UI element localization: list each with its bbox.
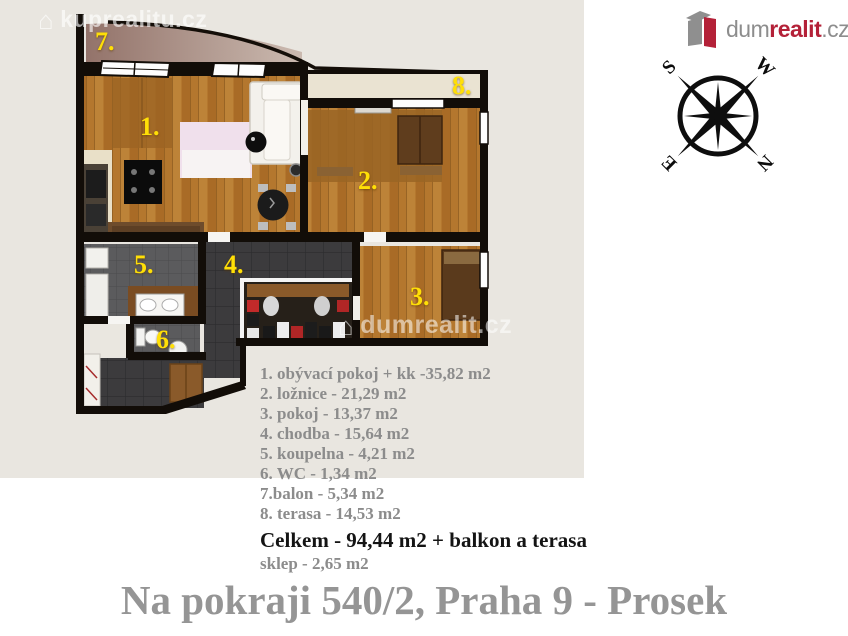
legend-total: Celkem - 94,44 m2 + balkon a terasa — [260, 527, 600, 554]
compass-rose: S W E N — [640, 38, 796, 194]
room-label-2: 2. — [358, 168, 378, 194]
legend-item-8: 8. terasa - 14,53 m2 — [260, 504, 600, 524]
room-label-6: 6. — [156, 327, 176, 353]
watermark-plan: ⌂ dumrealit.cz — [338, 311, 512, 340]
room-label-4: 4. — [224, 252, 244, 278]
room-label-8: 8. — [452, 73, 472, 99]
room-label-3: 3. — [410, 284, 430, 310]
compass-s: S — [658, 56, 680, 78]
watermark-text: dumrealit.cz — [360, 311, 512, 340]
legend-item-7: 7.balon - 5,34 m2 — [260, 484, 600, 504]
house-icon: ⌂ — [338, 315, 354, 337]
watermark-top-left: ⌂ kuprealitu.cz — [38, 6, 207, 33]
watermark-text: kuprealitu.cz — [60, 6, 207, 33]
compass-e: E — [657, 151, 681, 175]
room-1-living — [80, 64, 302, 238]
room-label-1: 1. — [140, 114, 160, 140]
legend-item-4: 4. chodba - 15,64 m2 — [260, 424, 600, 444]
legend-cellar: sklep - 2,65 m2 — [260, 554, 600, 574]
compass-w: W — [751, 53, 779, 81]
room-2-bedroom — [308, 100, 480, 240]
address-title: Na pokraji 540/2, Praha 9 - Prosek — [0, 576, 848, 624]
listing-image: 1. 2. 3. 4. 5. 6. 7. 8. ⌂ kuprealitu.cz … — [0, 0, 848, 636]
legend-item-6: 6. WC - 1,34 m2 — [260, 464, 600, 484]
legend-item-5: 5. koupelna - 4,21 m2 — [260, 444, 600, 464]
room-label-5: 5. — [134, 252, 154, 278]
legend-item-2: 2. ložnice - 21,29 m2 — [260, 384, 600, 404]
room-legend: 1. obývací pokoj + kk -35,82 m2 2. ložni… — [260, 364, 600, 574]
house-icon: ⌂ — [38, 10, 54, 30]
legend-item-3: 3. pokoj - 13,37 m2 — [260, 404, 600, 424]
legend-item-1: 1. obývací pokoj + kk -35,82 m2 — [260, 364, 600, 384]
logo-cz: .cz — [821, 16, 848, 42]
